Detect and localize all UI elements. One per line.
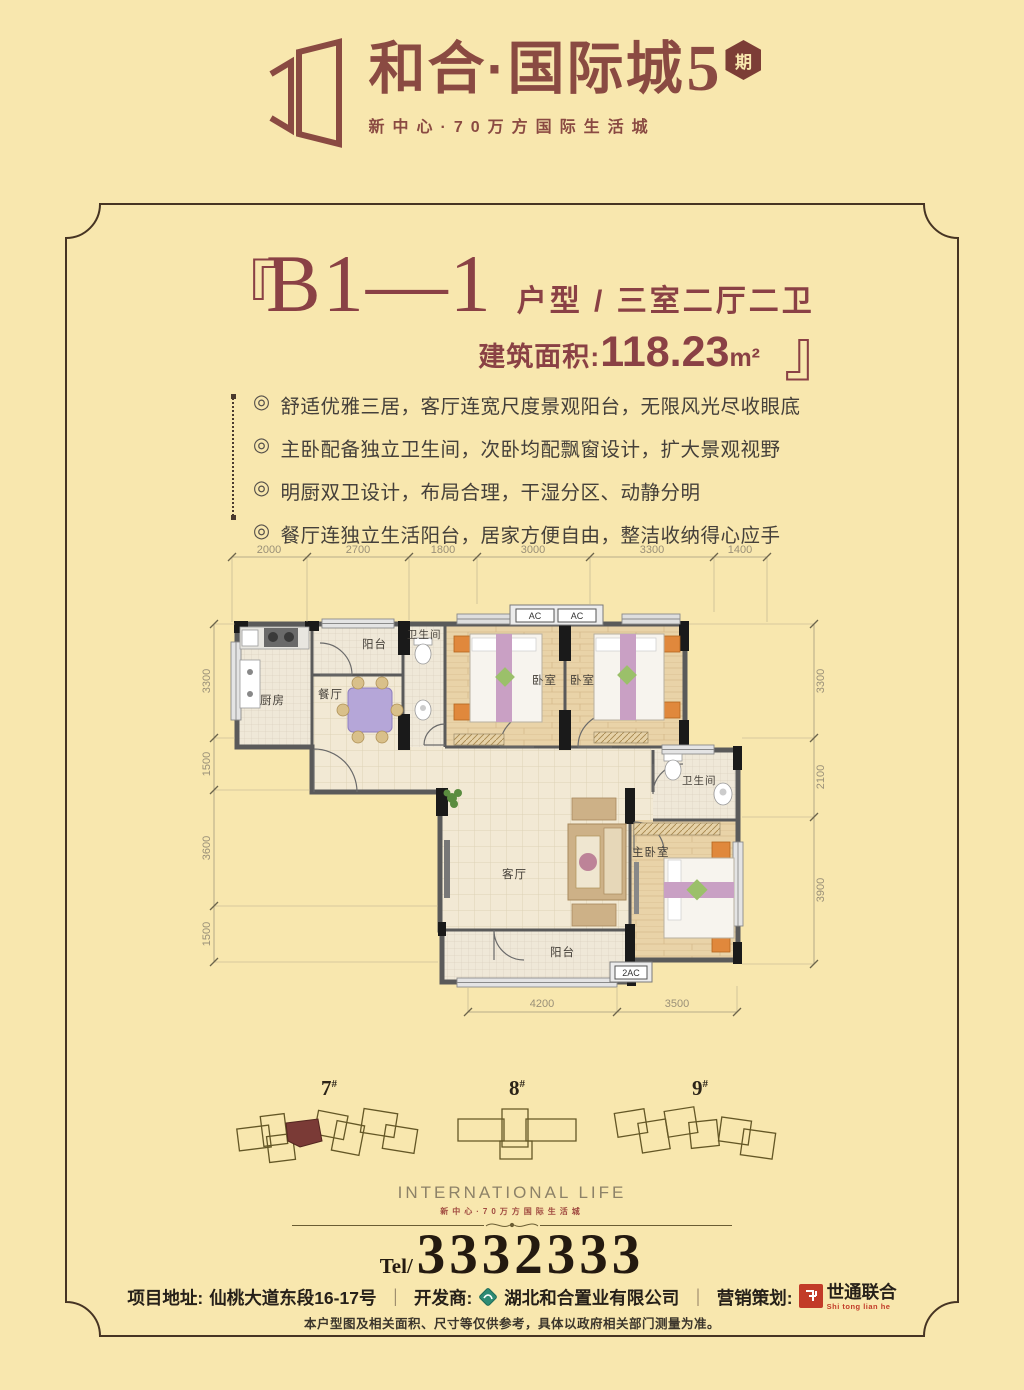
building-hash: # [703,1078,709,1090]
separator: ｜ [689,1285,707,1310]
room-label-kitchen: 厨房 [260,694,285,707]
building-8-footprint-icon [452,1101,582,1165]
address-label: 项目地址: [127,1285,203,1310]
feature-item: ◎主卧配备独立卫生间，次卧均配飘窗设计，扩大景观视野 [253,433,801,462]
building-9: 9# [610,1076,790,1165]
separator: ｜ [386,1285,404,1310]
close-bracket: 』 [784,303,846,393]
brand-tagline: 新中心·70万方国际生活城 [369,113,762,137]
phone-block: Tel/ 3332333 [0,1226,1024,1283]
building-number: 8 [509,1076,520,1100]
building-7: 7# [234,1076,424,1165]
svg-text:4200: 4200 [530,998,554,1010]
unit-code: B1—1 [266,243,493,325]
svg-text:3600: 3600 [202,836,213,860]
ac-label: 2AC [622,968,640,978]
svg-text:3300: 3300 [640,544,664,556]
unit-title-block: 『 』 B1—1 户型 / 三室二厅二卫 建筑面积: 118.23 m² [218,243,818,374]
building-hash: # [520,1078,526,1090]
phase-badge: 期 [725,40,761,80]
feature-item: ◎明厨双卫设计，布局合理，干湿分区、动静分明 [253,476,801,505]
room-label-bedroom1: 卧室 [532,673,557,687]
room-label-bedroom2: 卧室 [570,673,595,687]
room-label-balcony2: 阳台 [550,945,575,959]
area-label: 建筑面积: [478,335,600,374]
feature-list: ◎舒适优雅三居，客厅连宽尺度景观阳台，无限风光尽收眼底 ◎主卧配备独立卫生间，次… [253,390,801,548]
building-footprints: 7# 8# [0,1076,1024,1165]
brand-text-block: 和合·国际城 5 期 新中心·70万方国际生活城 [369,38,762,137]
feature-text: 主卧配备独立卫生间，次卧均配飘窗设计，扩大景观视野 [281,433,781,462]
poster-page: 和合·国际城 5 期 新中心·70万方国际生活城 『 』 B1—1 户型 / 三… [0,0,1024,1390]
building-hash: # [332,1078,338,1090]
room-label-balcony1: 阳台 [362,637,387,651]
room-label-master: 主卧室 [632,845,670,859]
bullet-icon: ◎ [253,433,271,462]
floor-plan: AC AC 2AC [202,542,832,1042]
agency-value: 世通联合 [827,1284,897,1302]
dotted-rail [232,398,235,516]
open-bracket: 『 [216,239,278,329]
building-number: 9 [692,1076,703,1100]
developer-label: 开发商: [414,1285,472,1310]
agency-subtext: Shi tong lian he [827,1303,897,1311]
svg-text:1800: 1800 [431,544,455,556]
building-7-footprint-icon [234,1101,424,1165]
address-line: 项目地址:仙桃大道东段16-17号 ｜ 开发商: 湖北和合置业有限公司 ｜ 营销… [0,1284,1024,1310]
area-unit: m² [729,344,760,373]
unit-type: 户型 / 三室二厅二卫 [517,276,815,320]
area-value: 118.23 [600,331,729,374]
open-door-logo-icon [263,38,349,152]
agency-label: 营销策划: [717,1285,793,1310]
ac-label: AC [529,611,542,621]
international-life-subtext: 新中心·70万方国际生活城 [0,1206,1024,1217]
svg-text:3900: 3900 [815,878,827,902]
room-label-bath2: 卫生间 [682,774,717,787]
brand-phase-number: 5 [686,38,719,101]
highlighted-unit [286,1119,322,1147]
bullet-icon: ◎ [253,390,271,419]
tel-number: 3332333 [417,1226,645,1283]
building-8: 8# [452,1076,582,1165]
address-value: 仙桃大道东段16-17号 [209,1285,376,1310]
svg-text:3000: 3000 [521,544,545,556]
developer-logo-icon [478,1287,498,1307]
svg-text:2700: 2700 [346,544,370,556]
feature-item: ◎舒适优雅三居，客厅连宽尺度景观阳台，无限风光尽收眼底 [253,390,801,419]
feature-text: 舒适优雅三居，客厅连宽尺度景观阳台，无限风光尽收眼底 [281,390,801,419]
developer-value: 湖北和合置业有限公司 [504,1285,679,1310]
brand-name: 和合·国际城 [369,38,685,101]
svg-text:3500: 3500 [665,998,689,1010]
disclaimer-text: 本户型图及相关面积、尺寸等仅供参考，具体以政府相关部门测量为准。 [0,1313,1024,1332]
svg-text:3300: 3300 [815,669,827,693]
agency-logo-icon [799,1284,823,1308]
ac-label: AC [571,611,584,621]
room-label-dining: 餐厅 [318,687,343,701]
svg-text:1500: 1500 [202,922,213,946]
feature-text: 明厨双卫设计，布局合理，干湿分区、动静分明 [281,476,701,505]
bullet-icon: ◎ [253,476,271,505]
svg-text:2000: 2000 [257,544,281,556]
feature-list-block: ◎舒适优雅三居，客厅连宽尺度景观阳台，无限风光尽收眼底 ◎主卧配备独立卫生间，次… [232,390,801,548]
svg-text:3300: 3300 [202,669,213,693]
svg-text:2100: 2100 [815,765,827,789]
room-label-bath1: 卫生间 [407,628,442,641]
svg-text:1500: 1500 [202,752,213,776]
international-life-block: INTERNATIONAL LIFE 新中心·70万方国际生活城 [0,1183,1024,1217]
brand-header: 和合·国际城 5 期 新中心·70万方国际生活城 [0,38,1024,152]
building-number: 7 [321,1076,332,1100]
international-life-text: INTERNATIONAL LIFE [0,1183,1024,1203]
building-9-footprint-icon [610,1101,790,1165]
tel-label: Tel/ [380,1254,413,1279]
floor-plan-svg: AC AC 2AC [202,542,832,1042]
svg-text:1400: 1400 [728,544,752,556]
room-label-living: 客厅 [502,867,527,881]
agency-block: 世通联合 Shi tong lian he [799,1284,897,1310]
